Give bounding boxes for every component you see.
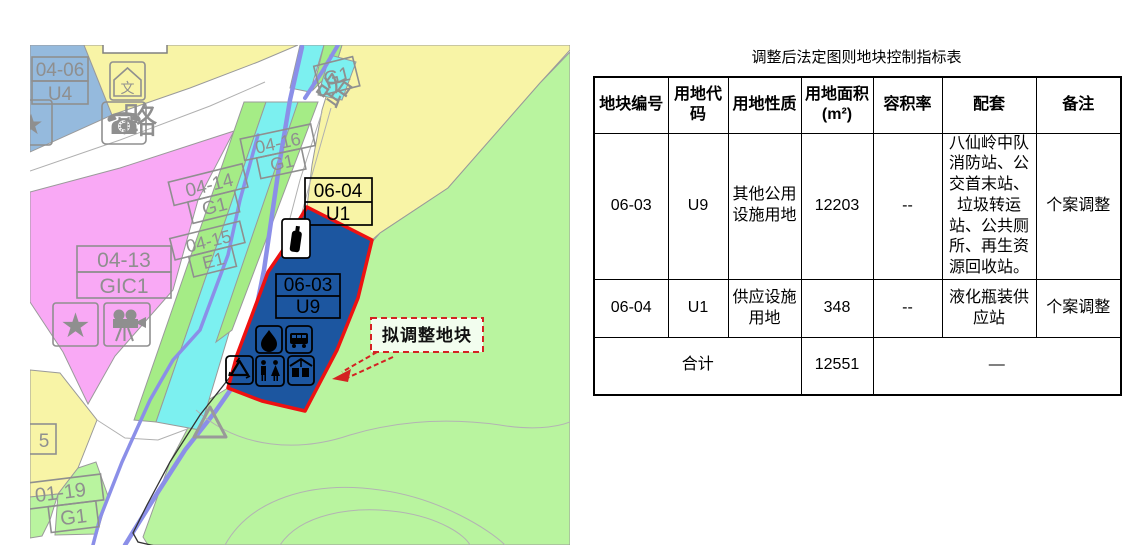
cell-plot-no: 06-04 (594, 280, 668, 338)
svg-text:★: ★ (30, 109, 44, 140)
col-header-land-nature: 用地性质 (728, 77, 801, 133)
plot-use-text: U9 (296, 297, 320, 318)
table-row: 06-03 U9 其他公用设施用地 12203 -- 八仙岭中队消防站、公交首末… (594, 133, 1121, 280)
zone-code: 04-06 (36, 60, 85, 81)
col-header-note: 备注 (1036, 77, 1121, 133)
cell-total-dash: — (873, 338, 1121, 395)
cell-land-area: 12203 (801, 133, 873, 280)
table-total-row: 合计 12551 — (594, 338, 1121, 395)
zone-code: 04-13 (97, 249, 151, 272)
zone-use: G1 (59, 505, 88, 530)
zone-use: GIC1 (99, 275, 148, 298)
cell-land-nature: 其他公用设施用地 (728, 133, 801, 280)
col-header-facilities: 配套 (942, 77, 1036, 133)
plot-use-text: U1 (326, 204, 350, 225)
col-header-far: 容积率 (873, 77, 942, 133)
col-header-land-code: 用地代码 (668, 77, 728, 133)
plot-control-indicator-table: 地块编号 用地代码 用地性质 用地面积(m²) 容积率 配套 备注 06-03 … (593, 76, 1122, 396)
plot-code-text: 06-04 (314, 181, 363, 202)
table-row: 06-04 U1 供应设施用地 348 -- 液化瓶装供应站 个案调整 (594, 280, 1121, 338)
cell-note: 个案调整 (1036, 133, 1121, 280)
cell-note: 个案调整 (1036, 280, 1121, 338)
cell-land-area: 348 (801, 280, 873, 338)
svg-text:☎: ☎ (105, 108, 142, 141)
gas-bottle-icon (282, 219, 310, 258)
annotation-text: 拟调整地块 (382, 325, 472, 345)
zoning-map: 06-03 U9 (30, 45, 570, 545)
cell-total-area: 12551 (801, 338, 873, 395)
cell-land-code: U9 (668, 133, 728, 280)
table-header-row: 地块编号 用地代码 用地性质 用地面积(m²) 容积率 配套 备注 (594, 77, 1121, 133)
cell-facilities: 液化瓶装供应站 (942, 280, 1036, 338)
svg-text:★: ★ (60, 307, 90, 345)
telephone-icon: ☎ (102, 102, 146, 144)
zone-code: 5 (39, 431, 50, 452)
partial-label-box-top (103, 45, 167, 53)
planning-adjustment-sheet: { "table": { "title": "调整后法定图则地块控制指标表", … (0, 0, 1145, 557)
indicator-table-section: 调整后法定图则地块控制指标表 地块编号 用地代码 用地性质 用地面积(m²) 容… (593, 46, 1120, 396)
cell-plot-no: 06-03 (594, 133, 668, 280)
zoning-map-canvas: 06-03 U9 (30, 45, 570, 545)
svg-text:文: 文 (121, 80, 135, 96)
cell-far: -- (873, 280, 942, 338)
plot-code-text: 06-03 (284, 275, 333, 296)
cell-land-code: U1 (668, 280, 728, 338)
cell-facilities: 八仙岭中队消防站、公交首末站、垃圾转运站、公共厕所、再生资源回收站。 (942, 133, 1036, 280)
cell-total-label: 合计 (594, 338, 801, 395)
cell-far: -- (873, 133, 942, 280)
cell-land-nature: 供应设施用地 (728, 280, 801, 338)
col-header-plot-no: 地块编号 (594, 77, 668, 133)
col-header-land-area: 用地面积(m²) (801, 77, 873, 133)
table-title: 调整后法定图则地块控制指标表 (593, 46, 1120, 70)
